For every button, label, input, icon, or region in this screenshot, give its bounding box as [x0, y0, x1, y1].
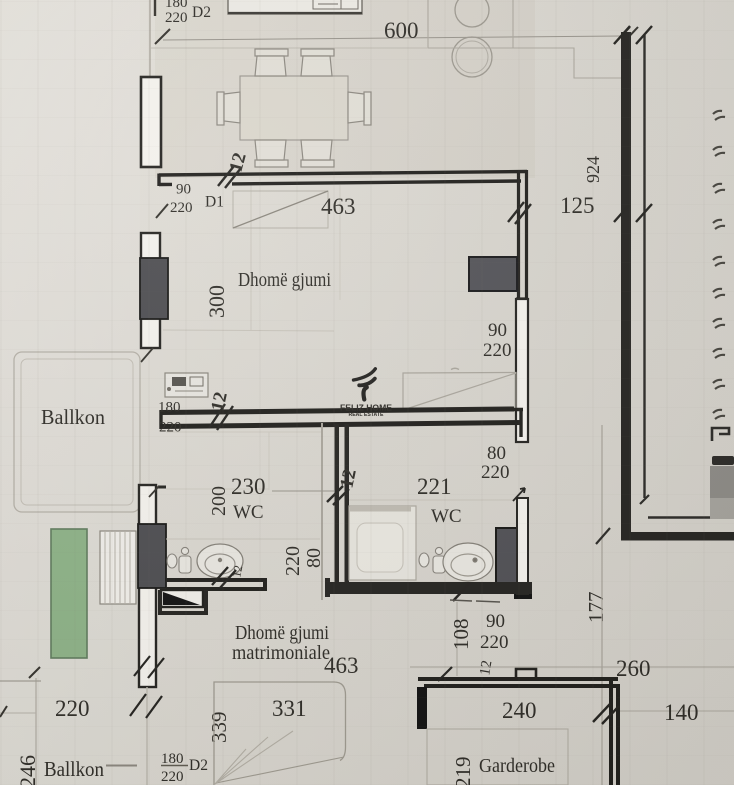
svg-text:600: 600 — [384, 18, 419, 43]
svg-text:240: 240 — [502, 698, 537, 723]
svg-text:260: 260 — [616, 656, 651, 681]
svg-text:219: 219 — [451, 757, 475, 785]
svg-text:108: 108 — [449, 619, 473, 651]
svg-text:140: 140 — [664, 700, 699, 725]
svg-text:12: 12 — [477, 659, 495, 677]
svg-text:Ballkon: Ballkon — [44, 757, 104, 781]
svg-text:220: 220 — [483, 340, 512, 361]
svg-text:125: 125 — [560, 193, 595, 218]
svg-text:220: 220 — [480, 632, 509, 653]
svg-text:220: 220 — [161, 769, 184, 785]
svg-text:Garderobe: Garderobe — [479, 756, 555, 777]
svg-text:REAL ESTATE: REAL ESTATE — [349, 412, 385, 418]
svg-text:D2: D2 — [189, 757, 208, 774]
svg-text:463: 463 — [321, 194, 356, 219]
svg-text:220: 220 — [165, 10, 188, 26]
svg-text:230: 230 — [231, 474, 266, 499]
svg-text:220: 220 — [282, 546, 304, 576]
svg-text:180: 180 — [158, 400, 181, 416]
svg-text:220: 220 — [481, 462, 510, 483]
svg-text:Dhomë gjumi: Dhomë gjumi — [238, 269, 331, 291]
svg-text:matrimoniale: matrimoniale — [232, 642, 330, 664]
svg-text:221: 221 — [417, 474, 452, 499]
svg-text:Dhomë gjumi: Dhomë gjumi — [235, 622, 329, 644]
svg-text:90: 90 — [486, 611, 505, 632]
svg-text:220: 220 — [55, 696, 90, 721]
svg-text:WC: WC — [233, 502, 264, 523]
svg-text:D1: D1 — [205, 194, 224, 211]
svg-text:80: 80 — [487, 443, 506, 464]
svg-text:80: 80 — [303, 548, 325, 568]
svg-text:200: 200 — [208, 486, 230, 516]
svg-text:463: 463 — [324, 653, 359, 678]
svg-text:D2: D2 — [192, 4, 211, 21]
svg-text:90: 90 — [488, 320, 507, 341]
svg-text:180: 180 — [161, 751, 184, 767]
svg-text:331: 331 — [272, 696, 307, 721]
svg-text:177: 177 — [584, 592, 608, 624]
svg-text:339: 339 — [207, 712, 231, 744]
svg-text:924: 924 — [583, 156, 603, 183]
svg-text:220: 220 — [159, 420, 182, 436]
svg-text:220: 220 — [170, 200, 193, 216]
svg-text:Ballkon: Ballkon — [41, 405, 105, 429]
svg-text:300: 300 — [204, 285, 229, 318]
svg-text:WC: WC — [431, 506, 462, 527]
svg-text:90: 90 — [176, 182, 191, 198]
